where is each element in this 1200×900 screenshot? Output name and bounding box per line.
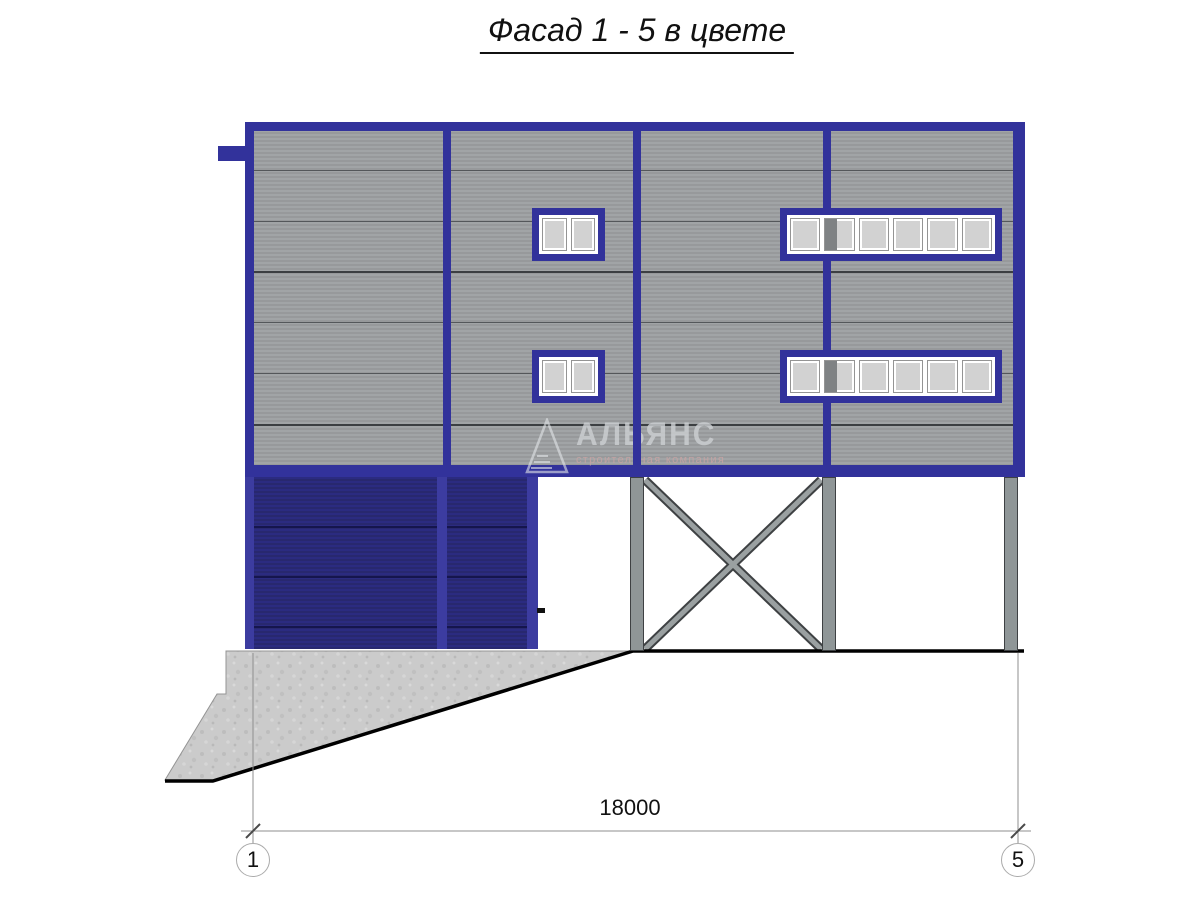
steel-column (630, 477, 644, 651)
axis-marker-5: 5 (1001, 843, 1035, 877)
facade-drawing-canvas: Фасад 1 - 5 в цвете АЛЬЯНС строительная … (0, 0, 1200, 900)
axis-marker-1: 1 (236, 843, 270, 877)
concrete-ramp (165, 651, 632, 780)
steel-column (1004, 477, 1018, 651)
x-bracing (645, 480, 821, 649)
steel-column (822, 477, 836, 651)
site-structure-layer (0, 0, 1200, 900)
dimension-value: 18000 (535, 795, 725, 821)
